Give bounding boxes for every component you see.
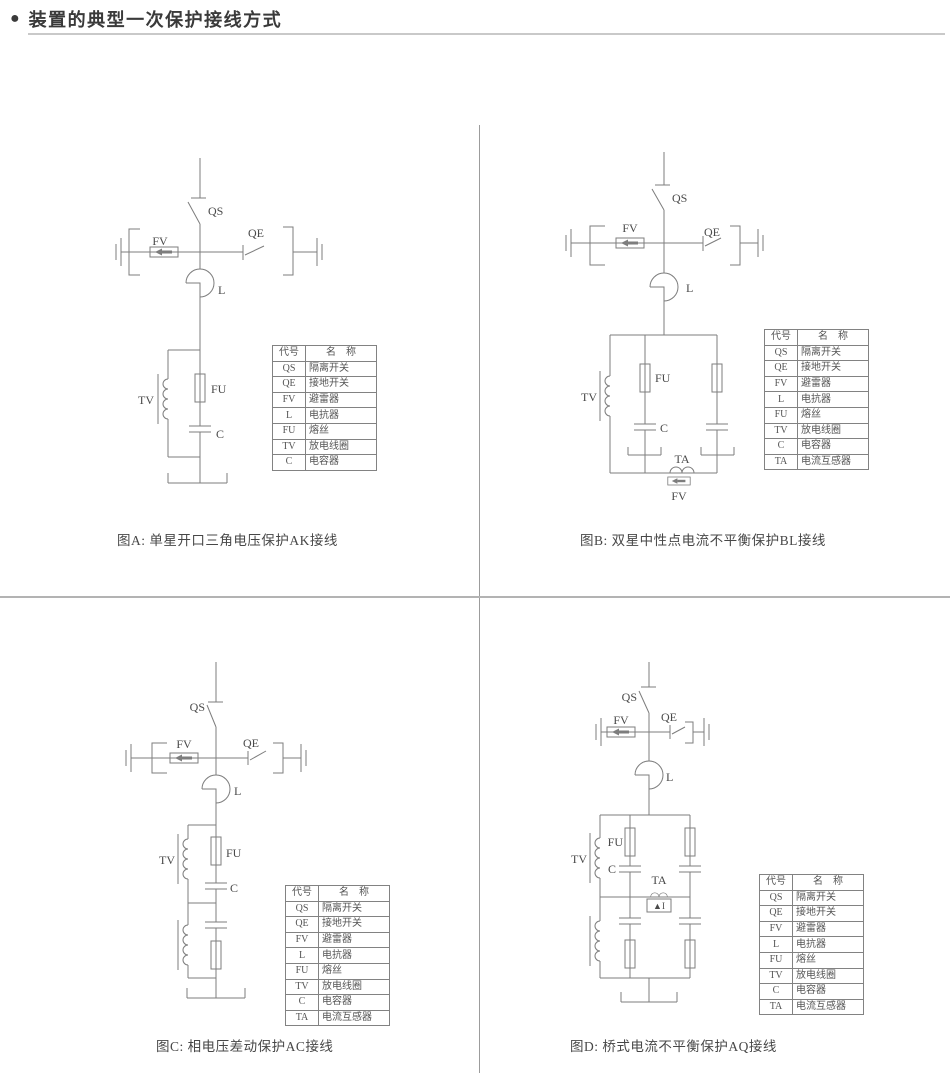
legend-row: L电抗器 (765, 392, 869, 408)
capacitor-symbol (679, 918, 701, 924)
legend-row: L电抗器 (760, 937, 864, 953)
label-fu: FU (655, 371, 671, 385)
legend-table-d: 代号 名 称 QS隔离开关QE接地开关FV避雷器L电抗器FU熔丝TV放电线圈C电… (759, 874, 864, 1015)
legend-name-cell: 避雷器 (793, 921, 864, 937)
legend-name-cell: 电容器 (319, 995, 390, 1011)
legend-row: TA电流互感器 (760, 999, 864, 1015)
label-qe: QE (248, 226, 264, 240)
label-l: L (666, 770, 673, 784)
legend-name-cell: 接地开关 (319, 917, 390, 933)
legend-code-cell: QE (760, 906, 793, 922)
legend-table-c: 代号 名 称 QS隔离开关QE接地开关FV避雷器L电抗器FU熔丝TV放电线圈C电… (285, 885, 390, 1026)
label-qs: QS (208, 204, 223, 218)
legend-row: QS隔离开关 (765, 345, 869, 361)
reactor-symbol (635, 761, 663, 789)
legend-name-cell: 电抗器 (319, 948, 390, 964)
legend-row: TV放电线圈 (273, 439, 377, 455)
legend-row: C电容器 (765, 439, 869, 455)
legend-table-a: 代号 名 称 QS隔离开关QE接地开关FV避雷器L电抗器FU熔丝TV放电线圈C电… (272, 345, 377, 471)
legend-code-cell: C (286, 995, 319, 1011)
caption-diagram-c: 图C: 相电压差动保护AC接线 (156, 1035, 333, 1055)
label-fv: FV (176, 737, 192, 751)
legend-header-code: 代号 (273, 346, 306, 362)
legend-name-cell: 熔丝 (319, 963, 390, 979)
capacitor-symbol (706, 424, 728, 430)
legend-name-cell: 放电线圈 (798, 423, 869, 439)
label-ta: TA (651, 873, 666, 887)
legend-row: QS隔离开关 (760, 890, 864, 906)
arrester-symbol (668, 477, 690, 485)
legend-code-cell: FV (273, 392, 306, 408)
caption-diagram-a: 图A: 单星开口三角电压保护AK接线 (117, 529, 338, 549)
legend-row: QS隔离开关 (286, 901, 390, 917)
legend-code-cell: QE (765, 361, 798, 377)
legend-code-cell: QS (765, 345, 798, 361)
legend-row: FV避雷器 (273, 392, 377, 408)
discharge-coil-symbol (178, 834, 188, 884)
reactor-symbol (650, 273, 678, 301)
ground-icon (596, 718, 601, 746)
ground-icon (126, 744, 131, 772)
legend-code-cell: FV (765, 376, 798, 392)
legend-code-cell: TV (273, 439, 306, 455)
legend-name-cell: 电抗器 (793, 937, 864, 953)
legend-code-cell: L (286, 948, 319, 964)
legend-row: QE接地开关 (273, 377, 377, 393)
capacitor-symbol (189, 426, 211, 432)
legend-row: QS隔离开关 (273, 361, 377, 377)
legend-name-cell: 熔丝 (306, 423, 377, 439)
ground-icon (704, 718, 709, 746)
diagram-c-wires (131, 662, 301, 998)
ground-icon (317, 238, 322, 266)
capacitor-symbol (619, 866, 641, 872)
legend-name-cell: 放电线圈 (306, 439, 377, 455)
legend-name-cell: 避雷器 (798, 376, 869, 392)
legend-code-cell: FU (286, 963, 319, 979)
legend-row: TV放电线圈 (765, 423, 869, 439)
legend-name-cell: 电容器 (306, 455, 377, 471)
capacitor-symbol (619, 918, 641, 924)
ground-icon (301, 744, 306, 772)
label-c: C (216, 427, 224, 441)
legend-code-cell: FV (286, 932, 319, 948)
label-tv: TV (571, 852, 587, 866)
legend-code-cell: C (273, 455, 306, 471)
legend-code-cell: QS (760, 890, 793, 906)
legend-row: QE接地开关 (760, 906, 864, 922)
legend-header-code: 代号 (760, 875, 793, 891)
legend-name-cell: 放电线圈 (319, 979, 390, 995)
caption-diagram-d: 图D: 桥式电流不平衡保护AQ接线 (570, 1035, 777, 1055)
label-fv: FV (152, 234, 168, 248)
legend-row: FU熔丝 (765, 407, 869, 423)
label-c: C (660, 421, 668, 435)
legend-header-name: 名 称 (793, 875, 864, 891)
label-qe: QE (661, 710, 677, 724)
label-l: L (234, 784, 241, 798)
label-fu: FU (211, 382, 227, 396)
legend-code-cell: TA (765, 454, 798, 470)
capacitor-symbol (679, 866, 701, 872)
label-qs: QS (622, 690, 637, 704)
current-transformer-symbol (651, 893, 668, 897)
legend-code-cell: L (765, 392, 798, 408)
legend-code-cell: TV (286, 979, 319, 995)
reactor-symbol (202, 775, 230, 803)
diagram-d: ▲I QS QE FV L TV FU C TA (571, 662, 709, 1002)
legend-name-cell: 接地开关 (793, 906, 864, 922)
label-c: C (230, 881, 238, 895)
ground-icon (116, 238, 121, 266)
legend-code-cell: C (760, 984, 793, 1000)
legend-name-cell: 避雷器 (306, 392, 377, 408)
legend-name-cell: 电流互感器 (798, 454, 869, 470)
legend-row: FU熔丝 (760, 952, 864, 968)
label-l: L (218, 283, 225, 297)
legend-row: C电容器 (760, 984, 864, 1000)
legend-row: L电抗器 (273, 408, 377, 424)
diagram-b: QS QE FV L TV FU C TA FV (566, 152, 763, 503)
legend-row: QE接地开关 (286, 917, 390, 933)
legend-row: TV放电线圈 (286, 979, 390, 995)
legend-code-cell: QS (273, 361, 306, 377)
label-c: C (608, 862, 616, 876)
label-qe: QE (243, 736, 259, 750)
legend-code-cell: TA (286, 1010, 319, 1026)
legend-row: FV避雷器 (286, 932, 390, 948)
label-fu: FU (608, 835, 624, 849)
label-l: L (686, 281, 693, 295)
legend-header-name: 名 称 (306, 346, 377, 362)
legend-name-cell: 熔丝 (798, 407, 869, 423)
legend-row: TA电流互感器 (765, 454, 869, 470)
label-ta: TA (674, 452, 689, 466)
ground-icon (566, 229, 571, 257)
legend-header-name: 名 称 (798, 330, 869, 346)
legend-name-cell: 隔离开关 (306, 361, 377, 377)
legend-header-name: 名 称 (319, 886, 390, 902)
legend-name-cell: 隔离开关 (319, 901, 390, 917)
discharge-coil-symbol (178, 920, 188, 970)
legend-row: FU熔丝 (273, 423, 377, 439)
discharge-coil-symbol (158, 374, 168, 424)
legend-row: QE接地开关 (765, 361, 869, 377)
label-tv: TV (159, 853, 175, 867)
legend-name-cell: 电抗器 (798, 392, 869, 408)
legend-name-cell: 电抗器 (306, 408, 377, 424)
legend-row: C电容器 (286, 995, 390, 1011)
discharge-coil-symbol (600, 371, 610, 421)
label-fv: FV (613, 713, 629, 727)
legend-name-cell: 接地开关 (306, 377, 377, 393)
legend-code-cell: TV (765, 423, 798, 439)
legend-row: L电抗器 (286, 948, 390, 964)
discharge-coil-symbol (590, 833, 600, 883)
label-tv: TV (581, 390, 597, 404)
label-qs: QS (190, 700, 205, 714)
legend-row: C电容器 (273, 455, 377, 471)
legend-name-cell: 电容器 (798, 439, 869, 455)
legend-row: TV放电线圈 (760, 968, 864, 984)
legend-name-cell: 隔离开关 (798, 345, 869, 361)
label-fu: FU (226, 846, 242, 860)
label-delta-i: ▲I (653, 901, 665, 911)
capacitor-symbol (205, 883, 227, 889)
legend-header-code: 代号 (765, 330, 798, 346)
legend-code-cell: FU (273, 423, 306, 439)
legend-row: FV避雷器 (765, 376, 869, 392)
legend-code-cell: FV (760, 921, 793, 937)
legend-name-cell: 放电线圈 (793, 968, 864, 984)
discharge-coil-symbol (590, 916, 600, 966)
legend-code-cell: FU (760, 952, 793, 968)
legend-header-code: 代号 (286, 886, 319, 902)
legend-table-b: 代号 名 称 QS隔离开关QE接地开关FV避雷器L电抗器FU熔丝TV放电线圈C电… (764, 329, 869, 470)
capacitor-symbol (205, 922, 227, 928)
caption-diagram-b: 图B: 双星中性点电流不平衡保护BL接线 (580, 529, 826, 549)
reactor-symbol (186, 269, 214, 297)
label-tv: TV (138, 393, 154, 407)
legend-code-cell: QS (286, 901, 319, 917)
legend-name-cell: 熔丝 (793, 952, 864, 968)
legend-name-cell: 电流互感器 (319, 1010, 390, 1026)
label-fv: FV (622, 221, 638, 235)
legend-name-cell: 接地开关 (798, 361, 869, 377)
legend-code-cell: L (273, 408, 306, 424)
legend-code-cell: L (760, 937, 793, 953)
legend-name-cell: 电容器 (793, 984, 864, 1000)
legend-code-cell: C (765, 439, 798, 455)
legend-row: FV避雷器 (760, 921, 864, 937)
legend-name-cell: 隔离开关 (793, 890, 864, 906)
label-fv-neutral: FV (671, 489, 687, 503)
label-qe: QE (704, 225, 720, 239)
legend-code-cell: TV (760, 968, 793, 984)
legend-code-cell: QE (273, 377, 306, 393)
legend-row: FU熔丝 (286, 963, 390, 979)
capacitor-symbol (634, 424, 656, 430)
legend-code-cell: FU (765, 407, 798, 423)
legend-name-cell: 电流互感器 (793, 999, 864, 1015)
label-qs: QS (672, 191, 687, 205)
legend-code-cell: QE (286, 917, 319, 933)
legend-row: TA电流互感器 (286, 1010, 390, 1026)
ground-icon (758, 229, 763, 257)
legend-code-cell: TA (760, 999, 793, 1015)
legend-name-cell: 避雷器 (319, 932, 390, 948)
current-transformer-symbol (670, 467, 694, 473)
diagram-c: QS QE FV L TV FU C (126, 662, 306, 998)
